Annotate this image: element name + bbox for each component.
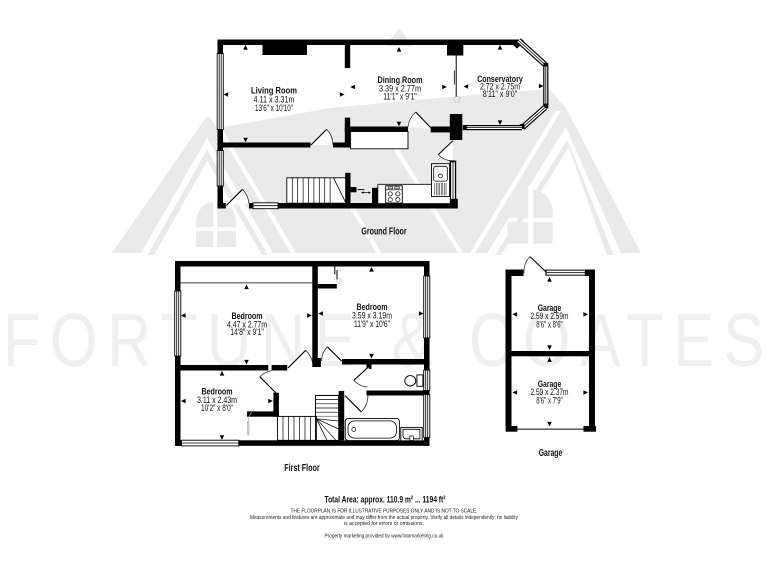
svg-text:10'2" x 8'0": 10'2" x 8'0" bbox=[201, 403, 233, 413]
svg-text:11'9" x 10'6": 11'9" x 10'6" bbox=[354, 319, 390, 329]
svg-text:Garage: Garage bbox=[539, 448, 563, 459]
svg-text:Ground Floor: Ground Floor bbox=[361, 226, 406, 237]
svg-text:8'6" x 8'6": 8'6" x 8'6" bbox=[536, 319, 562, 329]
svg-text:11'1" x 9'1": 11'1" x 9'1" bbox=[383, 91, 417, 101]
svg-text:is accepted for errors or omis: is accepted for errors or omissions. bbox=[344, 521, 424, 527]
svg-text:THE FLOORPLAN IS FOR ILLUSTRAT: THE FLOORPLAN IS FOR ILLUSTRATIVE PURPOS… bbox=[291, 508, 478, 514]
svg-text:13'6" x 10'10": 13'6" x 10'10" bbox=[255, 103, 293, 113]
svg-text:8'11" x 9'0": 8'11" x 9'0" bbox=[483, 89, 518, 99]
svg-text:First Floor: First Floor bbox=[284, 463, 320, 474]
svg-text:14'8" x 9'1": 14'8" x 9'1" bbox=[230, 327, 264, 337]
svg-text:8'6" x 7'9": 8'6" x 7'9" bbox=[536, 395, 562, 405]
svg-text:Property marketing provided by: Property marketing provided by www.fotom… bbox=[325, 534, 444, 540]
svg-text:Total Area: approx. 110.9 m² .: Total Area: approx. 110.9 m² ... 1194 ft… bbox=[325, 495, 446, 505]
